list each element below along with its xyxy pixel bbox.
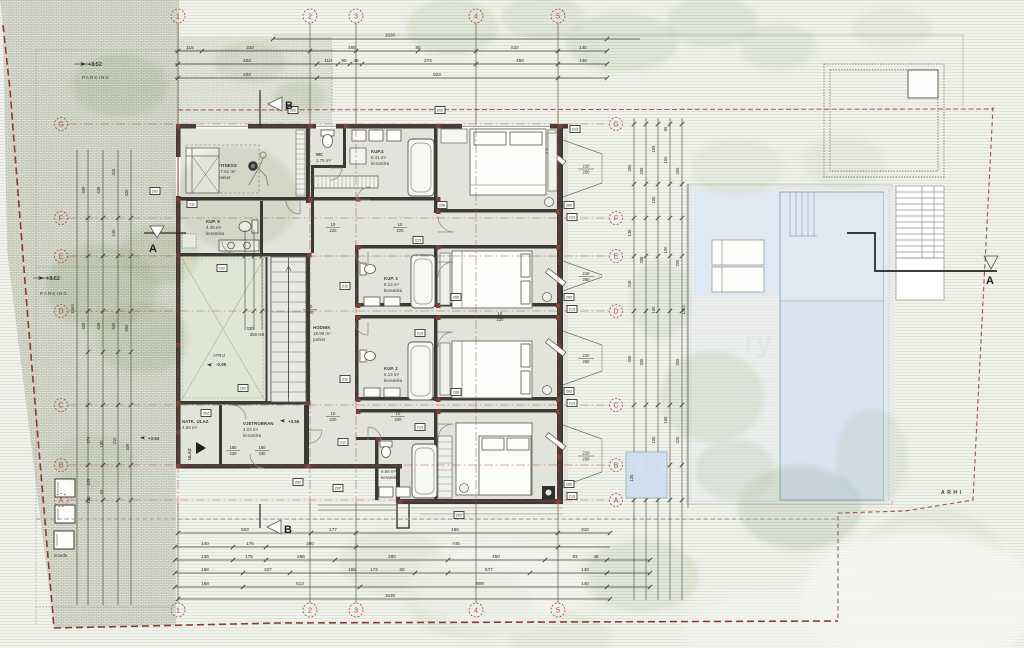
svg-text:202: 202 [437,108,443,112]
svg-text:HODNIK: HODNIK [313,325,331,330]
svg-text:4: 4 [474,606,478,615]
svg-text:202: 202 [240,386,246,390]
svg-text:230: 230 [259,451,267,456]
svg-text:202: 202 [152,189,158,193]
svg-text:keramika: keramika [371,161,390,166]
svg-text:1630: 1630 [385,33,396,38]
svg-text:745: 745 [452,541,460,546]
svg-text:140: 140 [111,229,116,237]
svg-text:6.41 m²: 6.41 m² [371,155,387,160]
svg-text:526: 526 [111,322,116,330]
svg-text:180: 180 [99,440,104,448]
svg-text:60: 60 [399,567,405,572]
svg-text:140: 140 [581,567,589,572]
svg-text:VJETROBRAN: VJETROBRAN [243,421,274,426]
svg-text:202: 202 [566,295,572,299]
svg-text:227: 227 [264,567,272,572]
svg-text:172: 172 [370,567,378,572]
svg-text:5: 5 [556,12,560,21]
svg-text:ry: ry [744,326,773,359]
svg-text:550: 550 [124,324,129,332]
svg-text:526: 526 [96,322,101,330]
svg-text:220: 220 [307,310,315,315]
svg-text:330: 330 [247,326,255,331]
svg-text:206: 206 [439,203,445,207]
svg-text:125: 125 [86,478,91,486]
svg-text:parket: parket [313,337,326,342]
svg-text:211: 211 [342,377,348,381]
svg-text:ARHI: ARHI [941,490,964,496]
svg-text:923: 923 [433,72,441,77]
svg-text:110: 110 [324,58,332,63]
svg-text:A: A [986,275,994,287]
svg-text:B: B [285,100,293,112]
svg-text:335: 335 [125,443,130,451]
svg-text:180: 180 [259,445,267,450]
svg-text:96: 96 [663,126,668,131]
svg-text:403: 403 [243,72,251,77]
svg-text:6.13 m²: 6.13 m² [384,372,400,377]
svg-text:202: 202 [335,486,341,490]
svg-text:WC: WC [316,152,323,157]
svg-text:202: 202 [219,266,225,270]
svg-text:180: 180 [230,445,238,450]
svg-text:205: 205 [675,358,680,366]
svg-text:210: 210 [583,164,591,169]
svg-text:355: 355 [627,355,632,363]
svg-text:202: 202 [203,411,209,415]
svg-text:4: 4 [474,12,478,21]
svg-text:100: 100 [663,246,668,254]
svg-text:D: D [58,307,63,316]
svg-text:310: 310 [581,527,589,532]
svg-text:125: 125 [86,496,91,504]
svg-text:202: 202 [566,203,572,207]
svg-text:213: 213 [572,127,578,131]
svg-text:539: 539 [96,186,101,194]
svg-text:5: 5 [556,606,560,615]
svg-text:3: 3 [354,12,358,21]
svg-text:513: 513 [296,581,304,586]
svg-text:210: 210 [112,437,117,445]
svg-text:286: 286 [297,554,305,559]
svg-text:213: 213 [569,401,575,405]
svg-text:250: 250 [583,359,591,364]
svg-text:206: 206 [453,390,459,394]
svg-text:177: 177 [329,527,337,532]
svg-text:4.59 m²: 4.59 m² [182,425,198,430]
svg-text:80: 80 [415,45,421,50]
svg-text:G: G [58,120,64,129]
svg-text:272: 272 [424,58,432,63]
svg-text:10: 10 [308,304,313,309]
svg-text:10: 10 [331,222,336,227]
svg-text:220: 220 [397,228,405,233]
svg-text:smeđe: smeđe [54,553,68,558]
svg-text:202: 202 [566,389,572,393]
svg-text:100: 100 [651,436,656,444]
svg-text:+3.56: +3.56 [288,419,300,424]
svg-text:10: 10 [498,311,503,316]
svg-text:+3.54: +3.54 [148,436,160,441]
svg-text:335: 335 [639,256,644,264]
svg-text:809: 809 [476,581,484,586]
svg-text:150: 150 [663,156,668,164]
svg-text:1: 1 [176,606,180,615]
svg-text:E: E [59,252,64,261]
svg-text:274: 274 [86,436,91,444]
svg-text:202: 202 [566,482,572,486]
svg-text:93: 93 [99,489,104,494]
svg-text:503: 503 [241,527,249,532]
svg-text:ULAZ: ULAZ [187,448,192,460]
svg-text:213: 213 [417,425,423,429]
svg-text:211: 211 [340,440,346,444]
svg-text:C: C [613,401,618,410]
svg-text:211: 211 [189,202,195,206]
svg-text:150: 150 [651,306,656,314]
svg-text:250: 250 [583,457,591,462]
svg-text:159: 159 [651,145,656,153]
svg-text:B: B [284,524,292,536]
svg-text:186: 186 [348,567,356,572]
svg-text:168: 168 [201,567,209,572]
svg-text:250+20: 250+20 [250,332,265,337]
svg-text:355: 355 [627,164,632,172]
svg-text:1463: 1463 [70,304,75,314]
svg-text:140: 140 [579,58,587,63]
svg-text:D: D [613,307,618,316]
svg-text:100: 100 [651,196,656,204]
svg-text:168: 168 [201,581,209,586]
svg-text:465: 465 [348,45,356,50]
svg-text:keramika: keramika [384,378,403,383]
svg-text:KUP. 1: KUP. 1 [381,463,395,468]
svg-text:335: 335 [639,358,644,366]
svg-text:G: G [613,120,619,129]
svg-text:175: 175 [246,541,254,546]
svg-text:420: 420 [124,189,129,197]
svg-text:1: 1 [176,12,180,21]
svg-text:211: 211 [342,284,348,288]
svg-text:115: 115 [186,45,194,50]
svg-text:403: 403 [243,58,251,63]
svg-text:6.00 m²: 6.00 m² [381,469,397,474]
svg-text:4.03 m²: 4.03 m² [243,427,259,432]
svg-text:450: 450 [516,58,524,63]
svg-text:48: 48 [593,554,599,559]
svg-text:210: 210 [583,353,591,358]
svg-text:6.13 m²: 6.13 m² [384,282,400,287]
svg-text:175: 175 [245,554,253,559]
svg-text:10: 10 [331,411,336,416]
svg-text:140: 140 [201,541,209,546]
svg-text:213: 213 [569,307,575,311]
svg-text:A: A [59,496,64,505]
svg-text:210: 210 [583,271,591,276]
svg-text:315: 315 [111,168,116,176]
svg-text:keramika: keramika [381,475,400,480]
svg-text:205: 205 [675,167,680,175]
svg-text:450: 450 [492,554,500,559]
svg-text:335: 335 [639,167,644,175]
svg-text:496: 496 [451,527,459,532]
svg-text:45: 45 [353,58,359,63]
svg-text:220: 220 [675,436,680,444]
svg-text:1.75 m²: 1.75 m² [316,158,332,163]
svg-text:213: 213 [569,215,575,219]
svg-text:A: A [614,496,619,505]
svg-text:keramika: keramika [243,433,262,438]
svg-text:510: 510 [511,45,519,50]
svg-text:140: 140 [579,45,587,50]
svg-text:205: 205 [675,259,680,267]
svg-text:B: B [614,461,619,470]
svg-text:3: 3 [354,606,358,615]
svg-text:2: 2 [308,12,312,21]
svg-text:125: 125 [629,474,634,482]
svg-text:280: 280 [388,554,396,559]
svg-text:577: 577 [485,567,493,572]
svg-text:218: 218 [627,280,632,288]
svg-text:KUP. 3: KUP. 3 [384,276,398,281]
svg-text:1630: 1630 [385,593,396,598]
svg-text:140: 140 [581,581,589,586]
svg-text:250: 250 [583,277,591,282]
svg-text:290: 290 [306,541,314,546]
svg-text:2: 2 [308,606,312,615]
svg-text:206: 206 [453,295,459,299]
svg-text:KUP. 2: KUP. 2 [384,366,398,371]
svg-text:-0.05: -0.05 [216,362,227,367]
svg-text:320: 320 [246,45,254,50]
svg-text:150: 150 [663,416,668,424]
svg-text:210: 210 [583,451,591,456]
svg-text:250: 250 [583,170,591,175]
svg-text:220: 220 [395,417,403,422]
svg-text:136: 136 [201,554,209,559]
svg-text:ATRIJ: ATRIJ [213,353,225,358]
svg-text:526: 526 [81,322,86,330]
svg-text:230: 230 [230,451,238,456]
svg-text:10: 10 [396,411,401,416]
svg-text:80: 80 [341,58,347,63]
svg-text:10: 10 [398,222,403,227]
svg-text:18.98 m²: 18.98 m² [313,331,331,336]
svg-text:539: 539 [81,186,86,194]
svg-text:220: 220 [330,417,338,422]
svg-text:A: A [149,243,157,255]
svg-text:138: 138 [627,229,632,237]
svg-text:213: 213 [569,494,575,498]
svg-text:202: 202 [295,480,301,484]
svg-text:93: 93 [572,554,578,559]
svg-text:213: 213 [417,331,423,335]
svg-text:keramika: keramika [384,288,403,293]
svg-text:220: 220 [330,228,338,233]
svg-text:B: B [59,461,64,470]
svg-text:NATK. ULAZ: NATK. ULAZ [182,419,209,424]
svg-text:F: F [614,214,619,223]
svg-text:C: C [58,401,63,410]
svg-text:1463: 1463 [681,305,686,315]
svg-text:KUP.4: KUP.4 [371,149,384,154]
svg-text:F: F [59,214,64,223]
svg-text:213: 213 [415,238,421,242]
svg-text:E: E [614,252,619,261]
svg-text:220: 220 [497,317,505,322]
